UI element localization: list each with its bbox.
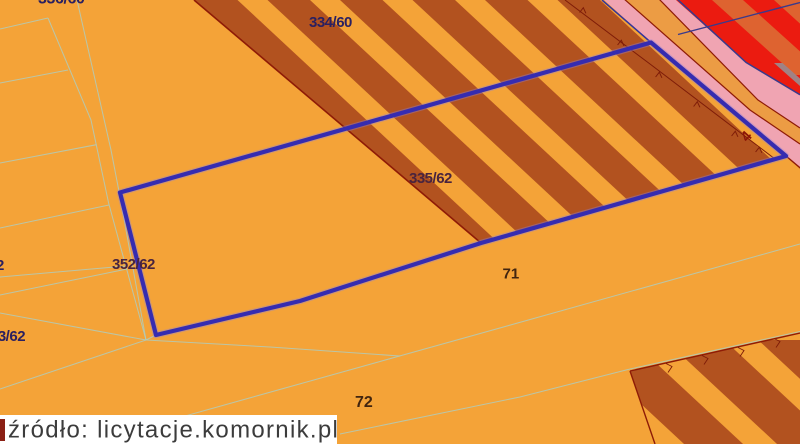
svg-text:źródło: licytacje.komornik.pl: źródło: licytacje.komornik.pl [8, 417, 339, 444]
svg-text:2: 2 [0, 257, 4, 274]
svg-text:71: 71 [503, 266, 520, 283]
svg-text:335/62: 335/62 [409, 170, 452, 187]
svg-text:336/60: 336/60 [38, 0, 85, 8]
svg-text:53/62: 53/62 [0, 328, 25, 345]
svg-text:72: 72 [355, 394, 373, 411]
svg-text:334/60: 334/60 [309, 14, 352, 31]
svg-text:352/62: 352/62 [112, 256, 155, 273]
